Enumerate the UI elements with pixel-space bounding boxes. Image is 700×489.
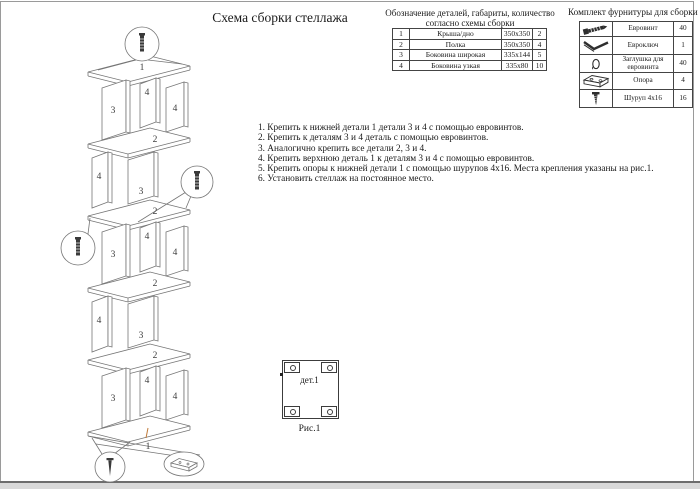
parts-table-cell-name: Полка [410, 40, 502, 51]
support-plate-icon [284, 406, 300, 417]
side-panel-edge [126, 224, 130, 277]
side-panel [140, 78, 156, 128]
part-number-label: 3 [111, 250, 116, 260]
part-number-label: 3 [139, 187, 144, 197]
parts-table: 1Крыша/дно350х35022Полка350х35043Боковин… [392, 28, 547, 71]
part-number-label: 4 [173, 392, 178, 402]
instruction-line: 1. Крепить к нижней детали 1 детали 3 и … [258, 123, 654, 133]
hardware-name-cell: Евроключ [613, 37, 674, 55]
support-plate-icon [321, 362, 337, 373]
hexkey-icon [581, 38, 611, 54]
instruction-line: 3. Аналогично крепить все детали 2, 3 и … [258, 144, 654, 154]
part-number-label: 4 [145, 376, 150, 386]
part-number-label: 3 [111, 394, 116, 404]
support-icon [581, 73, 611, 89]
instruction-line: 6. Установить стеллаж на постоянное мест… [258, 174, 654, 184]
side-panel-edge [156, 78, 160, 123]
screw-hole-icon [290, 365, 296, 371]
parts-table-cell-num: 1 [393, 29, 410, 40]
part-number-label: 2 [153, 279, 158, 289]
parts-table-cell-qty: 10 [533, 61, 547, 72]
hardware-icon-cell [580, 55, 613, 73]
figure-part-label: дет.1 [282, 375, 337, 385]
part-number-label: 1 [140, 63, 145, 73]
hardware-name-cell: Заглушка для евровинта [613, 55, 674, 73]
part-number-label: 3 [111, 106, 116, 116]
parts-table-cell-name: Боковина узкая [410, 61, 502, 72]
part-number-label: 2 [153, 351, 158, 361]
document-page: Схема сборки стеллажа Обозначение детале… [0, 0, 700, 489]
part-number-label: 4 [145, 88, 150, 98]
hardware-table: Евровинт40Евроключ1Заглушка для евровинт… [579, 21, 693, 108]
screw-hole-icon [290, 409, 296, 415]
hardware-icon-cell [580, 37, 613, 55]
side-panel-edge [156, 366, 160, 411]
side-panel-edge [156, 222, 160, 267]
part-number-label: 1 [146, 442, 151, 452]
hardware-name-cell: Евровинт [613, 22, 674, 37]
side-panel-edge [126, 368, 130, 421]
assembly-diagram: 1222213444334443344 [50, 18, 242, 486]
parts-table-cell-name: Боковина широкая [410, 50, 502, 61]
side-panel [140, 366, 156, 416]
side-panel-edge [126, 80, 130, 133]
part-number-label: 4 [173, 248, 178, 258]
side-panel-edge [154, 152, 158, 197]
side-panel-edge [184, 370, 188, 415]
instructions-list: 1. Крепить к нижней детали 1 детали 3 и … [258, 123, 654, 185]
hardware-qty-cell: 40 [674, 55, 693, 73]
hardware-icon-cell [580, 73, 613, 90]
parts-table-cell-size: 350х350 [502, 29, 533, 40]
cap-icon [581, 56, 611, 72]
hardware-table-caption: Комплект фурнитуры для сборки [568, 7, 696, 17]
part-number-label: 4 [145, 232, 150, 242]
hardware-name-cell: Шуруп 4х16 [613, 90, 674, 108]
support-plate-icon [321, 406, 337, 417]
parts-table-cell-qty: 4 [533, 40, 547, 51]
instruction-line: 2. Крепить к деталям 3 и 4 деталь с помо… [258, 133, 654, 143]
parts-table-cell-num: 4 [393, 61, 410, 72]
screw-icon [581, 91, 611, 107]
hardware-icon-cell [580, 22, 613, 37]
hardware-qty-cell: 40 [674, 22, 693, 37]
figure-det1 [282, 360, 339, 419]
hardware-qty-cell: 16 [674, 90, 693, 108]
parts-table-caption: Обозначение деталей, габариты, количеств… [374, 8, 566, 28]
parts-table-caption-line2: согласно схемы сборки [374, 18, 566, 28]
parts-table-cell-size: 335х80 [502, 61, 533, 72]
side-panel-edge [184, 226, 188, 271]
hardware-qty-cell: 4 [674, 73, 693, 90]
side-panel-edge [108, 296, 112, 347]
parts-table-cell-qty: 2 [533, 29, 547, 40]
parts-table-cell-num: 2 [393, 40, 410, 51]
side-panel [140, 222, 156, 272]
parts-table-cell-qty: 5 [533, 50, 547, 61]
eurovint-icon [581, 22, 611, 37]
part-number-label: 4 [97, 316, 102, 326]
figure-caption: Рис.1 [282, 424, 337, 434]
side-panel-edge [184, 82, 188, 127]
instruction-line: 5. Крепить опоры к нижней детали 1 с пом… [258, 164, 654, 174]
side-panel-edge [108, 152, 112, 203]
parts-table-cell-size: 350х350 [502, 40, 533, 51]
parts-table-cell-size: 335х144 [502, 50, 533, 61]
part-number-label: 4 [97, 172, 102, 182]
screw-hole-icon [327, 409, 333, 415]
side-panel-edge [154, 296, 158, 341]
part-number-label: 2 [153, 207, 158, 217]
screw-hole-icon [327, 365, 333, 371]
support-plate-icon [284, 362, 300, 373]
parts-table-caption-line1: Обозначение деталей, габариты, количеств… [374, 8, 566, 18]
part-number-label: 4 [173, 104, 178, 114]
parts-table-cell-name: Крыша/дно [410, 29, 502, 40]
hardware-qty-cell: 1 [674, 37, 693, 55]
hardware-icon-cell [580, 90, 613, 108]
part-number-label: 2 [153, 135, 158, 145]
instruction-line: 4. Крепить верхнюю деталь 1 к деталям 3 … [258, 154, 654, 164]
hardware-name-cell: Опора [613, 73, 674, 90]
part-number-label: 3 [139, 331, 144, 341]
parts-table-cell-num: 3 [393, 50, 410, 61]
